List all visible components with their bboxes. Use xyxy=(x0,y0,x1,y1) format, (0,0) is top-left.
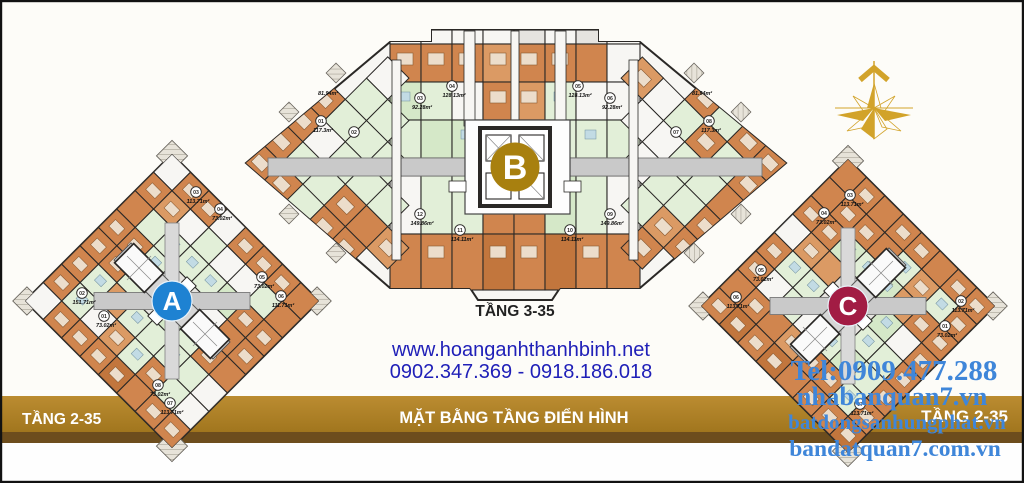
svg-text:TẦNG 2-35: TẦNG 2-35 xyxy=(22,411,102,428)
svg-text:08: 08 xyxy=(706,119,712,125)
svg-text:B: B xyxy=(503,149,528,187)
svg-text:73.02m²: 73.02m² xyxy=(816,220,836,226)
svg-text:04: 04 xyxy=(821,211,827,217)
svg-text:MẶT BẰNG TẦNG ĐIỂN HÌNH: MẶT BẰNG TẦNG ĐIỂN HÌNH xyxy=(399,408,628,427)
svg-text:batdongsanhungphat.vn: batdongsanhungphat.vn xyxy=(788,410,1006,434)
svg-text:114.11m²: 114.11m² xyxy=(561,237,583,243)
svg-text:73.02m²: 73.02m² xyxy=(937,333,957,339)
svg-text:81.94m²: 81.94m² xyxy=(318,91,338,97)
svg-text:114.11m²: 114.11m² xyxy=(451,237,473,243)
svg-text:05: 05 xyxy=(575,84,581,90)
svg-text:C: C xyxy=(839,291,858,321)
svg-text:01: 01 xyxy=(942,324,948,330)
svg-text:www.hoanganhthanhbinh.net: www.hoanganhthanhbinh.net xyxy=(391,339,650,361)
svg-text:128.13m²: 128.13m² xyxy=(442,93,465,99)
svg-text:04: 04 xyxy=(449,84,455,90)
svg-text:113.71m²: 113.71m² xyxy=(187,199,210,205)
svg-text:01: 01 xyxy=(318,119,324,125)
svg-text:05: 05 xyxy=(259,275,265,281)
svg-text:149.86m²: 149.86m² xyxy=(600,221,623,227)
svg-text:117.3m²: 117.3m² xyxy=(701,128,721,134)
svg-text:117.3m²: 117.3m² xyxy=(313,128,333,134)
svg-text:07: 07 xyxy=(673,130,679,136)
svg-text:92.28m²: 92.28m² xyxy=(602,105,622,111)
svg-text:73.02m²: 73.02m² xyxy=(212,216,232,222)
svg-text:01: 01 xyxy=(101,314,107,320)
svg-text:73.02m²: 73.02m² xyxy=(254,284,274,290)
svg-text:07: 07 xyxy=(167,401,173,407)
svg-text:09: 09 xyxy=(607,212,613,218)
svg-text:128.13m²: 128.13m² xyxy=(568,93,591,99)
svg-text:04: 04 xyxy=(217,207,223,213)
svg-text:02: 02 xyxy=(79,291,85,297)
svg-text:11: 11 xyxy=(457,228,463,234)
svg-text:81.94m²: 81.94m² xyxy=(692,91,712,97)
svg-text:05: 05 xyxy=(758,268,764,274)
svg-text:0902.347.369 - 0918.186.018: 0902.347.369 - 0918.186.018 xyxy=(390,361,652,383)
svg-text:02: 02 xyxy=(351,130,357,136)
svg-text:12: 12 xyxy=(417,212,423,218)
svg-text:nhabanquan7.vn: nhabanquan7.vn xyxy=(797,381,988,411)
svg-text:06: 06 xyxy=(607,96,613,102)
svg-text:149.86m²: 149.86m² xyxy=(410,221,433,227)
svg-text:111.71m²: 111.71m² xyxy=(272,303,294,309)
svg-text:73.02m²: 73.02m² xyxy=(96,323,116,329)
svg-text:113.71m²: 113.71m² xyxy=(161,410,184,416)
svg-text:73.02m²: 73.02m² xyxy=(150,392,170,398)
svg-text:02: 02 xyxy=(958,299,964,305)
svg-text:03: 03 xyxy=(193,190,199,196)
svg-text:03: 03 xyxy=(417,96,423,102)
svg-text:10: 10 xyxy=(567,228,573,234)
svg-text:TẦNG 3-35: TẦNG 3-35 xyxy=(475,303,555,320)
svg-text:06: 06 xyxy=(733,295,739,301)
svg-text:08: 08 xyxy=(155,383,161,389)
svg-text:113.71m²: 113.71m² xyxy=(841,202,864,208)
svg-text:bandatquan7.com.vn: bandatquan7.com.vn xyxy=(789,436,1001,462)
svg-text:A: A xyxy=(163,286,182,316)
svg-text:113.71m²: 113.71m² xyxy=(727,304,750,310)
svg-text:06: 06 xyxy=(278,294,284,300)
svg-text:92.28m²: 92.28m² xyxy=(412,105,432,111)
svg-text:03: 03 xyxy=(847,193,853,199)
svg-text:113.71m²: 113.71m² xyxy=(952,308,975,314)
svg-text:151.71m²: 151.71m² xyxy=(72,300,95,306)
svg-text:73.02m²: 73.02m² xyxy=(753,277,773,283)
